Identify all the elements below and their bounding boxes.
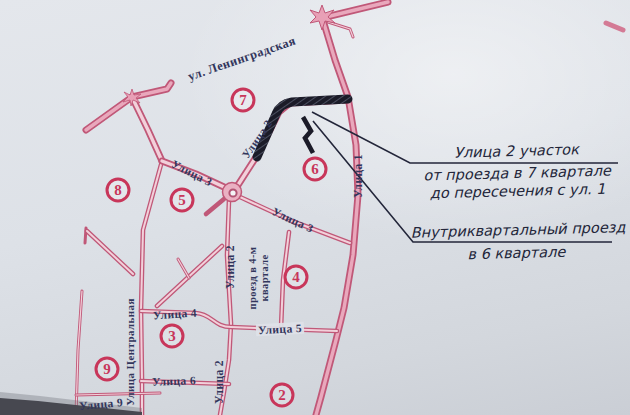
street-label-ulitsa-6: Улица 6: [152, 374, 196, 388]
street-label-ulitsa-4: Улица 4: [153, 306, 198, 321]
street-label-ulitsa-5: Улица 5: [256, 322, 305, 336]
street-label-ulitsa-2-lower: Улица 2: [213, 360, 225, 404]
street-label-ulitsa-1: Улица 1: [352, 154, 364, 198]
street-label-leningradskaya: ул. Ленинградская: [186, 33, 298, 84]
street-label-proezd-4: проезд в 4-мквартале: [247, 247, 270, 310]
block-number-4: 4: [284, 265, 309, 290]
scanned-street-map: ул. ЛенинградскаяУлица 2Улица 3Улица 3Ул…: [0, 0, 630, 415]
block-number-9: 9: [95, 357, 120, 382]
block-number-8: 8: [106, 178, 131, 203]
callout-street2-section: Улица 2 участок от проезда в 7 квартале …: [407, 139, 626, 203]
street-label-tsentralnaya: Улица Центральная: [124, 298, 136, 406]
street-label-ulitsa-2-upper: Улица 2: [239, 118, 274, 161]
street-label-ulitsa-2-mid: Улица 2: [224, 245, 236, 289]
callout-inner-driveway: Внутриквартальный проезд в 6 квартале: [410, 218, 621, 264]
labels-layer: ул. ЛенинградскаяУлица 2Улица 3Улица 3Ул…: [0, 0, 630, 415]
block-number-2: 2: [270, 383, 295, 408]
block-number-7: 7: [231, 88, 256, 113]
block-number-5: 5: [170, 188, 195, 213]
street-label-ulitsa-3-lower: Улица 3: [271, 205, 316, 234]
street-label-ulitsa-3-upper: Улица 3: [170, 158, 215, 189]
block-number-6: 6: [303, 157, 328, 182]
street-label-ulitsa-9: Улица 9: [79, 396, 124, 412]
block-number-3: 3: [160, 324, 185, 349]
